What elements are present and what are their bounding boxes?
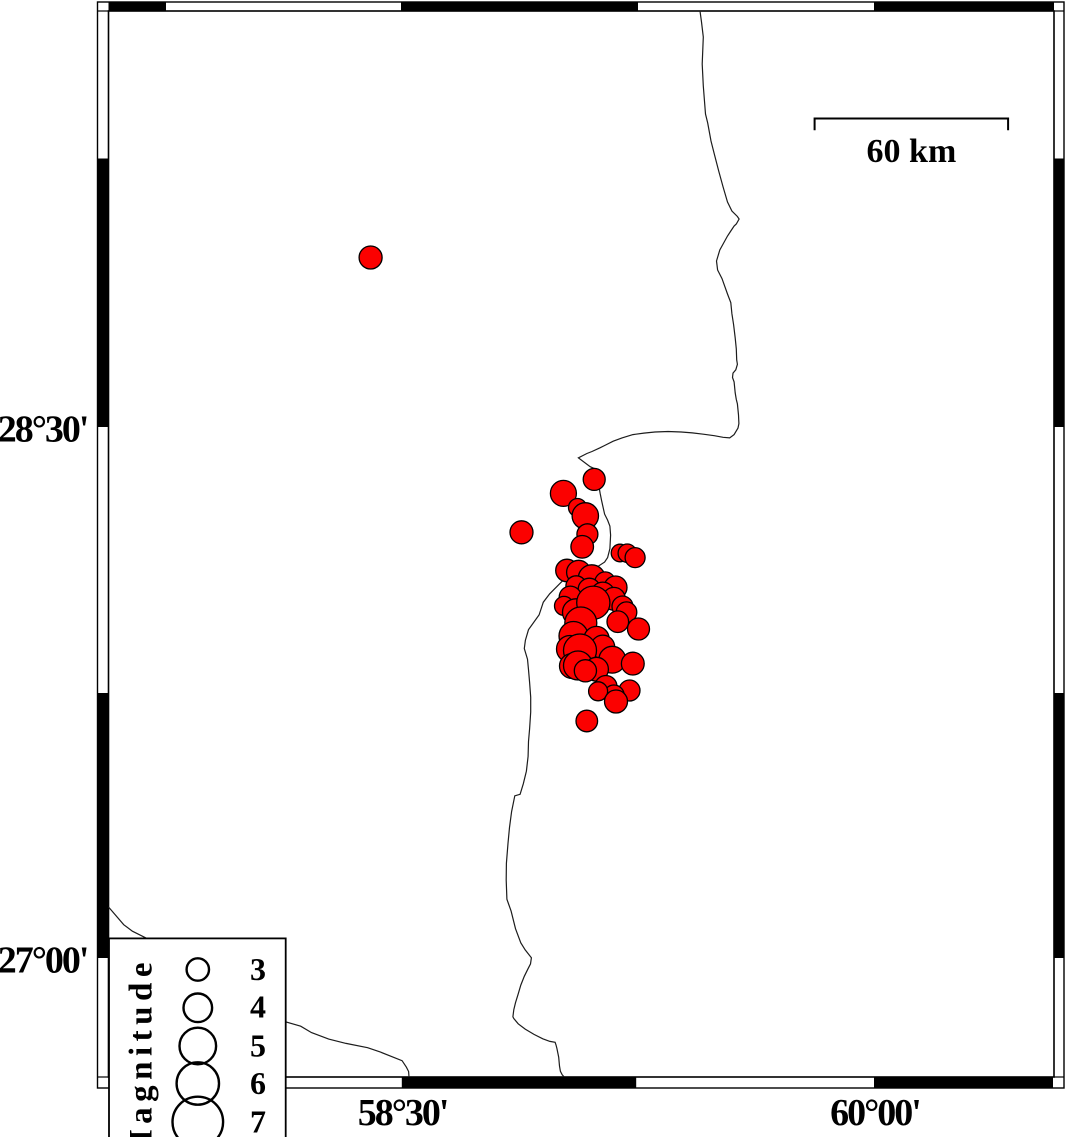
svg-text:27°00': 27°00' (0, 940, 88, 982)
svg-text:58°30': 58°30' (358, 1092, 448, 1134)
svg-text:7: 7 (250, 1104, 266, 1137)
svg-text:6: 6 (250, 1065, 266, 1101)
svg-text:5: 5 (250, 1028, 266, 1064)
svg-text:60 km: 60 km (867, 133, 957, 170)
svg-text:4: 4 (250, 988, 266, 1024)
svg-text:3: 3 (250, 951, 266, 987)
svg-text:Magnitude: Magnitude (124, 957, 160, 1137)
svg-text:60°00': 60°00' (830, 1092, 920, 1134)
svg-text:28°30': 28°30' (0, 409, 88, 451)
